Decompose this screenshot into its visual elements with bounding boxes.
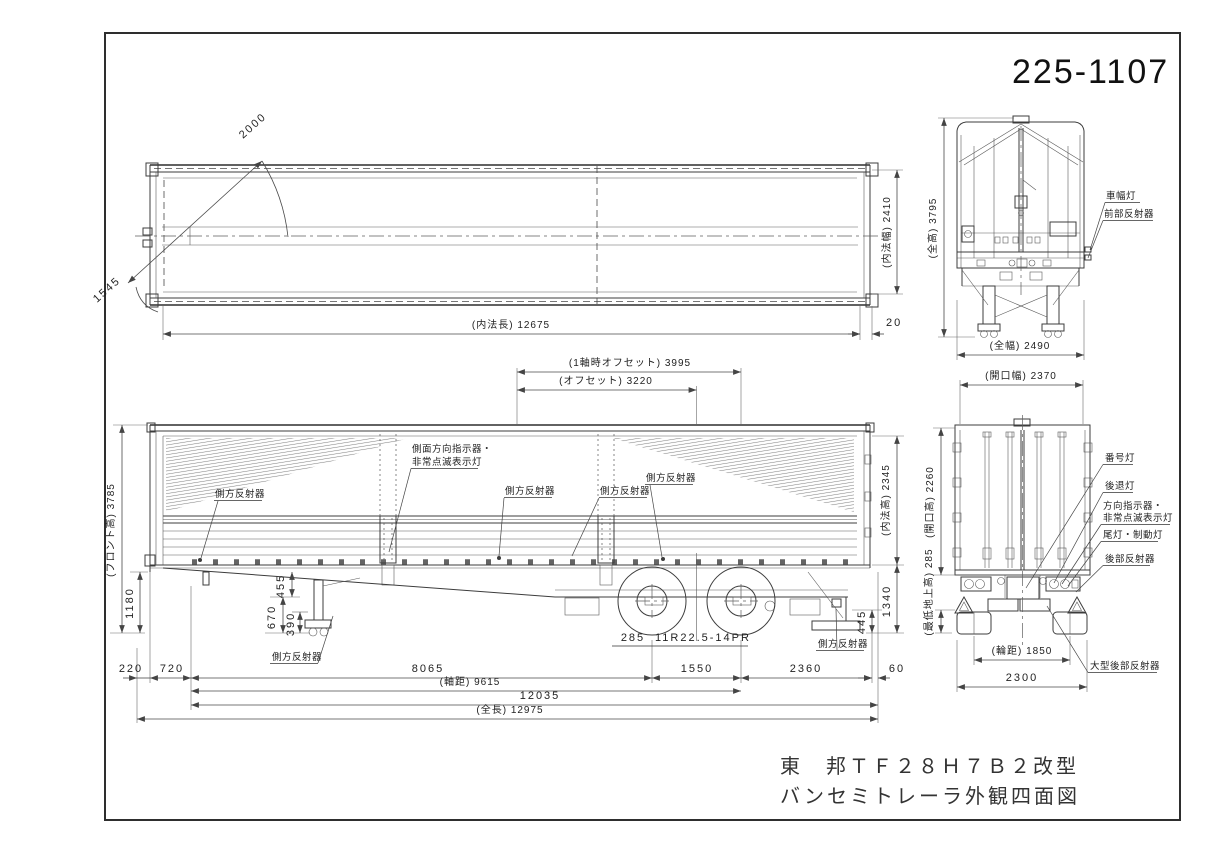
dim-8065: 8065 [412,663,444,675]
dim-390: 390 [285,612,297,636]
dim-inner-height: (内法高) 2345 [879,464,892,536]
dim-2360: 2360 [790,663,822,675]
dim-12035: 12035 [520,690,561,702]
label-reverse-lamp: 後退灯 [1105,480,1135,492]
dim-overall-width: (全幅) 2490 [990,339,1051,352]
drawing-sheet: 225-1107 [0,0,1227,868]
tire-size-label: 11R22.5-14PR [655,632,751,644]
dim-opening-width: (開口幅) 2370 [985,369,1057,382]
dim-inner-length: (内法長) 12675 [472,318,550,331]
dim-track: (輪距) 1850 [992,644,1053,657]
dim-rear-gap-20: 20 [886,317,902,329]
model-designation: 東 邦ＴＦ２８Ｈ７Ｂ２改型 [780,755,1079,778]
label-side-turn-1: 側面方向指示器・ [412,443,492,455]
label-rear-reflector: 後部反射器 [1105,553,1155,565]
dim-inner-width: (内法幅) 2410 [880,196,893,268]
label-side-turn-2: 非常点滅表示灯 [412,456,482,468]
dim-tire-width: 285 [621,632,645,644]
dim-offset: (オフセット) 3220 [559,375,653,387]
label-side-reflector-6: 側方反射器 [818,638,868,650]
dim-overall-length: (全長) 12975 [476,703,543,716]
dim-offset-single-axle: (1軸時オフセット) 3995 [569,356,691,369]
technical-drawing: 225-1107 [0,0,1227,868]
label-tail-brake-lamp: 尾灯・制動灯 [1103,529,1163,541]
dim-rear-overall-width: 2300 [1006,672,1038,684]
dim-455: 455 [275,574,287,598]
label-clearance-lamp: 車幅灯 [1106,190,1136,202]
dim-1340: 1340 [881,585,893,617]
dim-1180: 1180 [124,587,136,619]
dim-60: 60 [889,663,905,675]
dim-opening-height: (開口高) 2260 [923,466,936,538]
dim-min-ground-clearance: (最低地上高) 285 [922,548,935,635]
label-large-rear-reflector: 大型後部反射器 [1090,660,1160,672]
drawing-name: バンセミトレーラ外観四面図 [780,785,1080,808]
label-rear-turn-1: 方向指示器・ [1103,500,1163,512]
dim-1550: 1550 [681,663,713,675]
label-side-reflector-2: 側方反射器 [505,485,555,497]
label-side-reflector-4: 側方反射器 [646,472,696,484]
drawing-number: 225-1107 [1012,53,1169,91]
dim-wheelbase: (軸距) 9615 [440,675,501,688]
label-side-reflector-5: 側方反射器 [272,651,322,663]
dim-720: 720 [160,663,184,675]
dim-445: 445 [856,610,868,634]
label-rear-turn-2: 非常点滅表示灯 [1103,512,1173,524]
dim-front-height: (フロント高) 3785 [104,483,117,577]
label-front-reflector: 前部反射器 [1104,208,1154,220]
dim-overall-height: (全高) 3795 [926,198,939,259]
label-side-reflector-1: 側方反射器 [215,488,265,500]
dim-670: 670 [266,605,278,629]
label-side-reflector-3: 側方反射器 [600,485,650,497]
dim-220: 220 [119,663,143,675]
label-number-plate-lamp: 番号灯 [1105,452,1135,464]
